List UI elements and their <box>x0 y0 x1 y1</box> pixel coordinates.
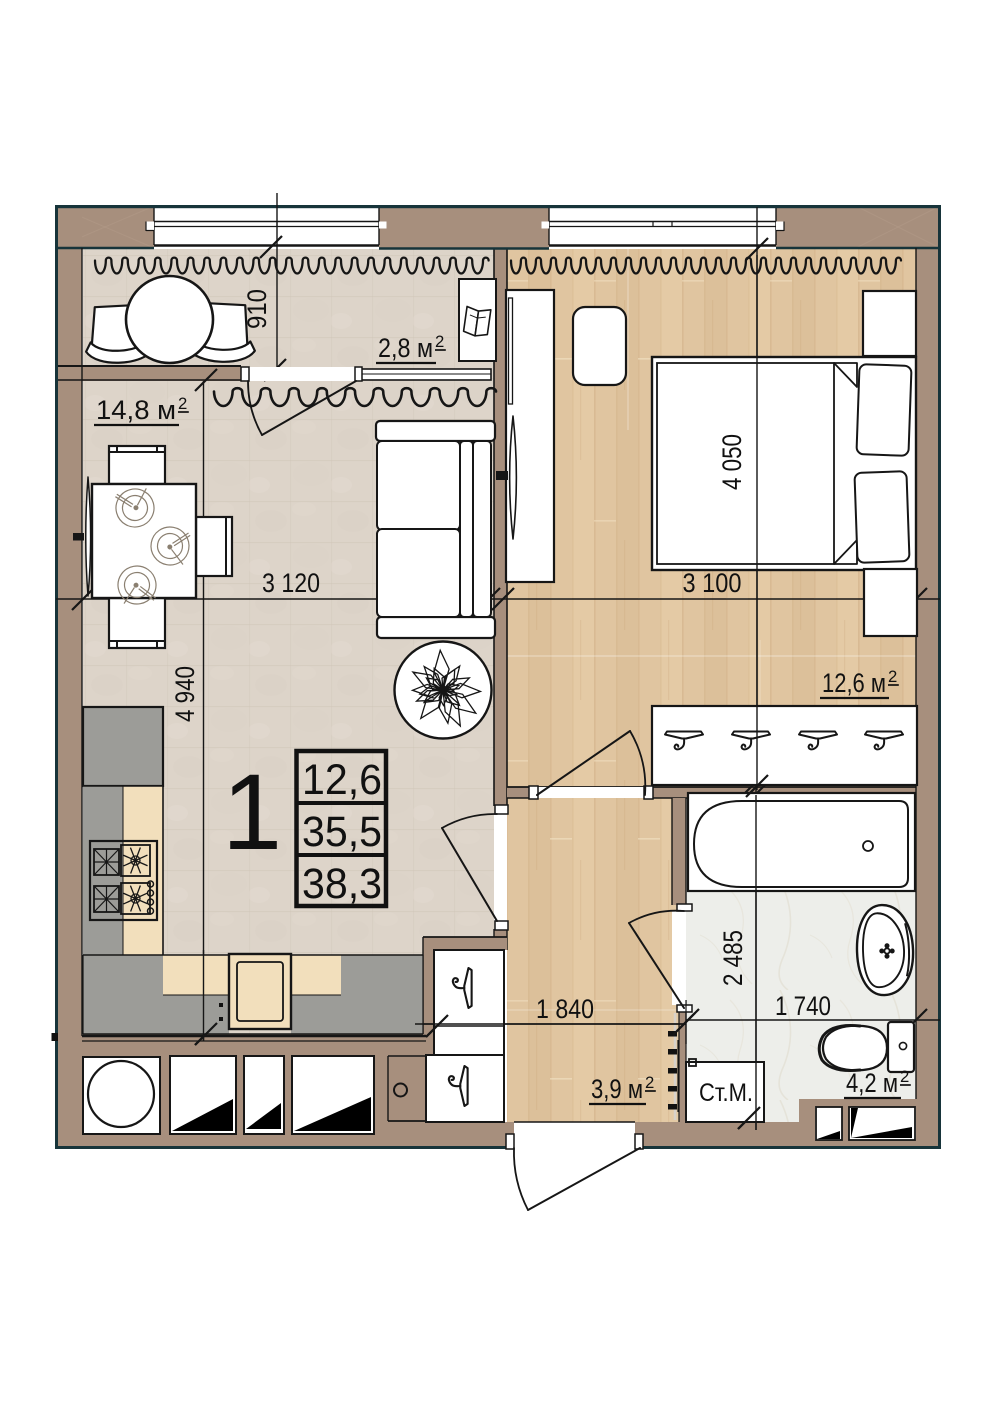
svg-text:4,2 м: 4,2 м <box>846 1068 898 1098</box>
svg-text:12,6: 12,6 <box>302 756 382 804</box>
svg-text:2: 2 <box>888 667 897 686</box>
svg-text:4 940: 4 940 <box>170 666 200 722</box>
svg-text:1 840: 1 840 <box>536 994 594 1024</box>
svg-text:1 740: 1 740 <box>775 991 831 1021</box>
svg-text:910: 910 <box>242 289 272 329</box>
svg-text:3,9 м: 3,9 м <box>591 1074 643 1104</box>
svg-text:2: 2 <box>435 332 444 351</box>
svg-text:2 485: 2 485 <box>718 930 748 986</box>
svg-text:1: 1 <box>222 751 282 872</box>
svg-text:35,5: 35,5 <box>302 808 382 856</box>
svg-text:2,8 м: 2,8 м <box>378 333 433 363</box>
svg-text:3 100: 3 100 <box>683 568 742 598</box>
svg-text:3 120: 3 120 <box>262 568 320 598</box>
svg-text:2: 2 <box>900 1067 909 1086</box>
svg-text:14,8 м: 14,8 м <box>96 395 176 425</box>
svg-text:4 050: 4 050 <box>717 434 747 490</box>
svg-text:2: 2 <box>178 394 187 413</box>
svg-text:12,6 м: 12,6 м <box>822 668 886 698</box>
svg-text:38,3: 38,3 <box>302 860 382 908</box>
svg-text:Ст.М.: Ст.М. <box>699 1079 753 1107</box>
svg-text:2: 2 <box>645 1073 654 1092</box>
